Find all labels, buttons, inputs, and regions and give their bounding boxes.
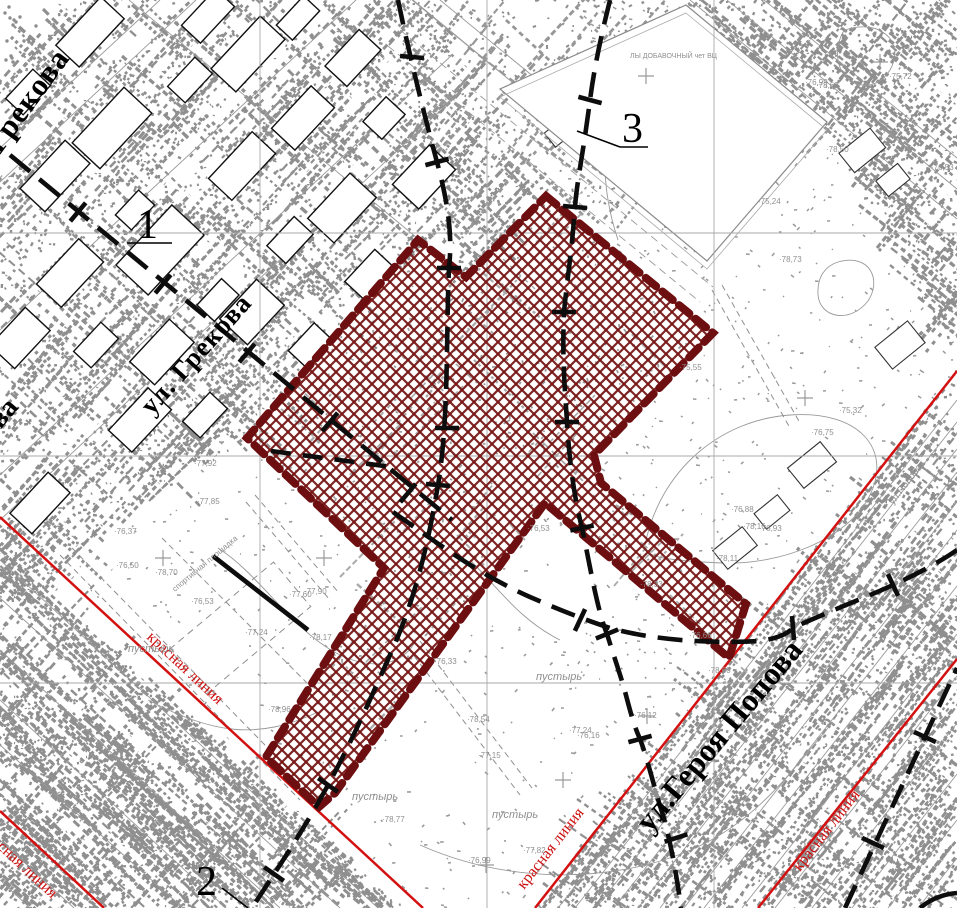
svg-text:·76,33: ·76,33 — [434, 657, 457, 666]
svg-text:2: 2 — [196, 859, 217, 905]
svg-text:·76,53: ·76,53 — [527, 524, 550, 533]
svg-text:·75,55: ·75,55 — [679, 363, 702, 372]
svg-text:·75,72: ·75,72 — [889, 72, 912, 81]
svg-text:1: 1 — [137, 202, 158, 248]
svg-text:·76,53: ·76,53 — [191, 597, 214, 606]
svg-text:пустырь: пустырь — [352, 791, 398, 803]
svg-text:·76,37: ·76,37 — [114, 527, 137, 536]
svg-text:·76,88: ·76,88 — [731, 505, 754, 514]
svg-text:·75,24: ·75,24 — [758, 197, 781, 206]
svg-text:·78,16: ·78,16 — [743, 522, 766, 531]
svg-text:·78,77: ·78,77 — [382, 815, 405, 824]
svg-text:·76,53: ·76,53 — [931, 163, 954, 172]
svg-text:·75,32: ·75,32 — [839, 406, 862, 415]
svg-text:пустырь: пустырь — [492, 809, 538, 821]
svg-text:·78,33: ·78,33 — [640, 580, 663, 589]
svg-text:·78,50: ·78,50 — [826, 145, 849, 154]
svg-text:·76,75: ·76,75 — [811, 428, 834, 437]
svg-text:·76,99: ·76,99 — [468, 856, 491, 865]
svg-text:·78,60: ·78,60 — [708, 666, 731, 675]
svg-text:·76,50: ·76,50 — [116, 561, 139, 570]
svg-text:·76,12: ·76,12 — [634, 711, 657, 720]
svg-text:·78,11: ·78,11 — [716, 554, 739, 563]
svg-text:·78,17: ·78,17 — [309, 633, 332, 642]
svg-text:·77,24: ·77,24 — [245, 628, 268, 637]
svg-text:·78,96: ·78,96 — [268, 705, 291, 714]
svg-text:·77,90: ·77,90 — [304, 587, 327, 596]
svg-text:пустырь: пустырь — [128, 643, 174, 655]
svg-text:·78,73: ·78,73 — [779, 255, 802, 264]
svg-text:·78,70: ·78,70 — [155, 568, 178, 577]
svg-text:3: 3 — [622, 106, 643, 152]
svg-text:·78,54: ·78,54 — [467, 715, 490, 724]
svg-text:·77,85: ·77,85 — [197, 497, 220, 506]
svg-text:ЛЫ ДОБАВОЧНЫЙ чет ВЦ: ЛЫ ДОБАВОЧНЫЙ чет ВЦ — [630, 51, 718, 60]
svg-text:·77,15: ·77,15 — [478, 751, 501, 760]
svg-text:пустырь: пустырь — [536, 671, 582, 683]
svg-text:·77,24: ·77,24 — [569, 726, 592, 735]
svg-text:·76,99: ·76,99 — [805, 78, 828, 87]
svg-text:·76,66: ·76,66 — [689, 631, 712, 640]
svg-text:·77,92: ·77,92 — [194, 459, 217, 468]
svg-text:·77,82: ·77,82 — [523, 846, 546, 855]
